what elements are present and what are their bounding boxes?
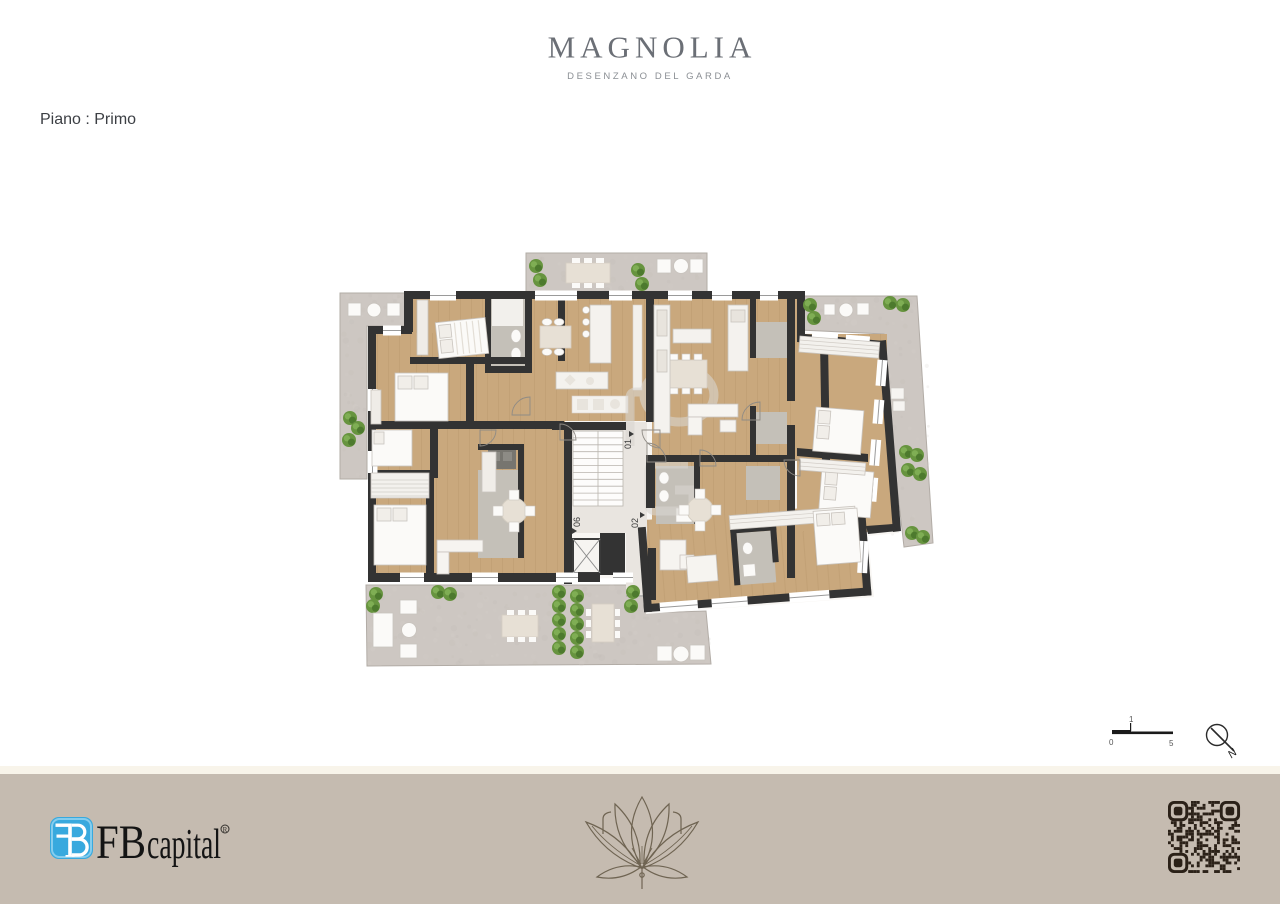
svg-text:5: 5 (1169, 739, 1174, 748)
svg-text:Piano : Primo: Piano : Primo (40, 111, 136, 128)
svg-text:1: 1 (1129, 715, 1134, 724)
svg-text:DESENZANO DEL GARDA: DESENZANO DEL GARDA (567, 71, 733, 82)
svg-text:R: R (223, 826, 228, 834)
svg-text:FB: FB (96, 816, 146, 869)
svg-text:capital: capital (147, 822, 221, 868)
svg-text:MAGNOLIA: MAGNOLIA (548, 30, 757, 65)
svg-text:06: 06 (572, 517, 582, 527)
svg-text:01: 01 (623, 439, 633, 449)
svg-text:N: N (1226, 747, 1240, 761)
svg-text:02: 02 (630, 518, 640, 528)
svg-text:0: 0 (1109, 738, 1114, 747)
